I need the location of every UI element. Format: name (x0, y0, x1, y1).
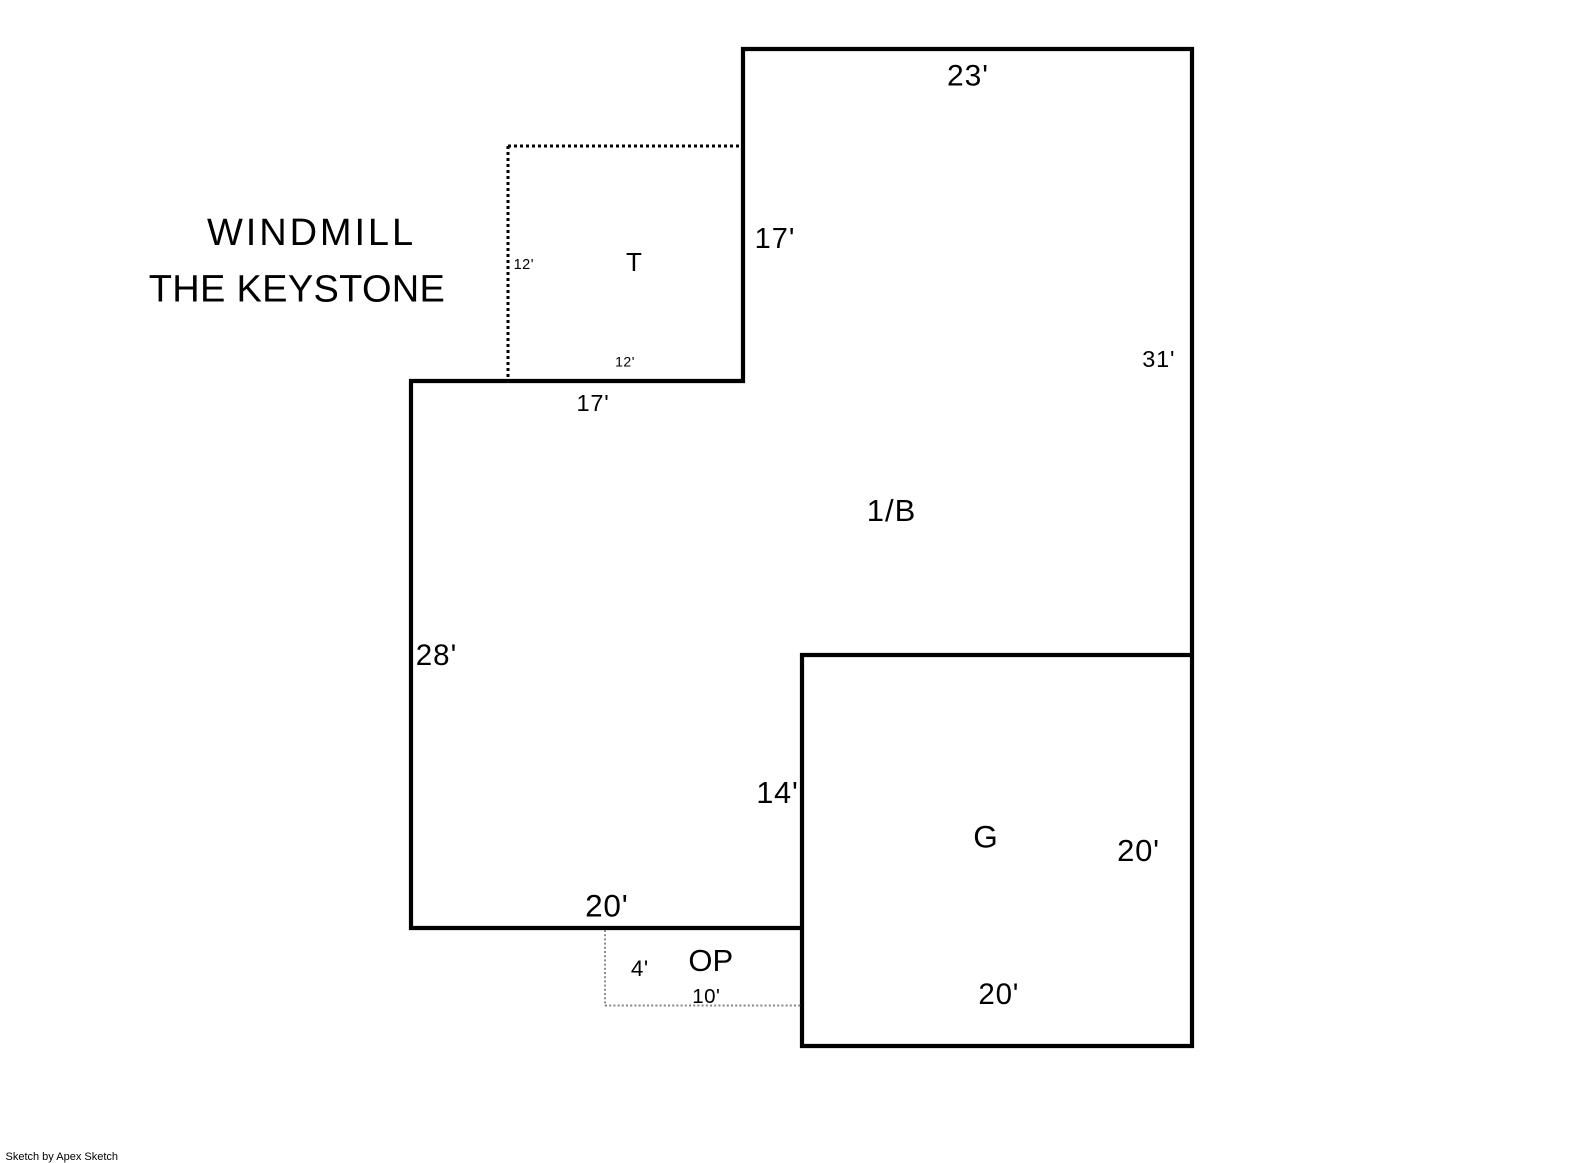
svg-text:17': 17' (576, 390, 609, 416)
svg-text:THE KEYSTONE: THE KEYSTONE (149, 269, 445, 311)
svg-text:20': 20' (585, 888, 628, 924)
svg-text:4': 4' (631, 956, 649, 981)
svg-text:1/B: 1/B (867, 493, 917, 528)
svg-text:23': 23' (947, 60, 989, 93)
svg-text:WINDMILL: WINDMILL (207, 212, 416, 254)
svg-text:OP: OP (688, 943, 733, 978)
svg-text:20': 20' (978, 978, 1019, 1011)
svg-text:28': 28' (416, 639, 457, 672)
svg-text:G: G (973, 819, 998, 855)
svg-text:12': 12' (514, 257, 534, 273)
svg-text:14': 14' (756, 776, 798, 810)
svg-text:T: T (626, 247, 642, 277)
svg-text:10': 10' (692, 985, 720, 1008)
svg-text:20': 20' (1117, 833, 1160, 868)
svg-text:17': 17' (755, 223, 796, 255)
svg-text:12': 12' (615, 354, 635, 370)
svg-text:Sketch by Apex Sketch: Sketch by Apex Sketch (6, 1151, 119, 1163)
svg-text:31': 31' (1142, 346, 1175, 372)
